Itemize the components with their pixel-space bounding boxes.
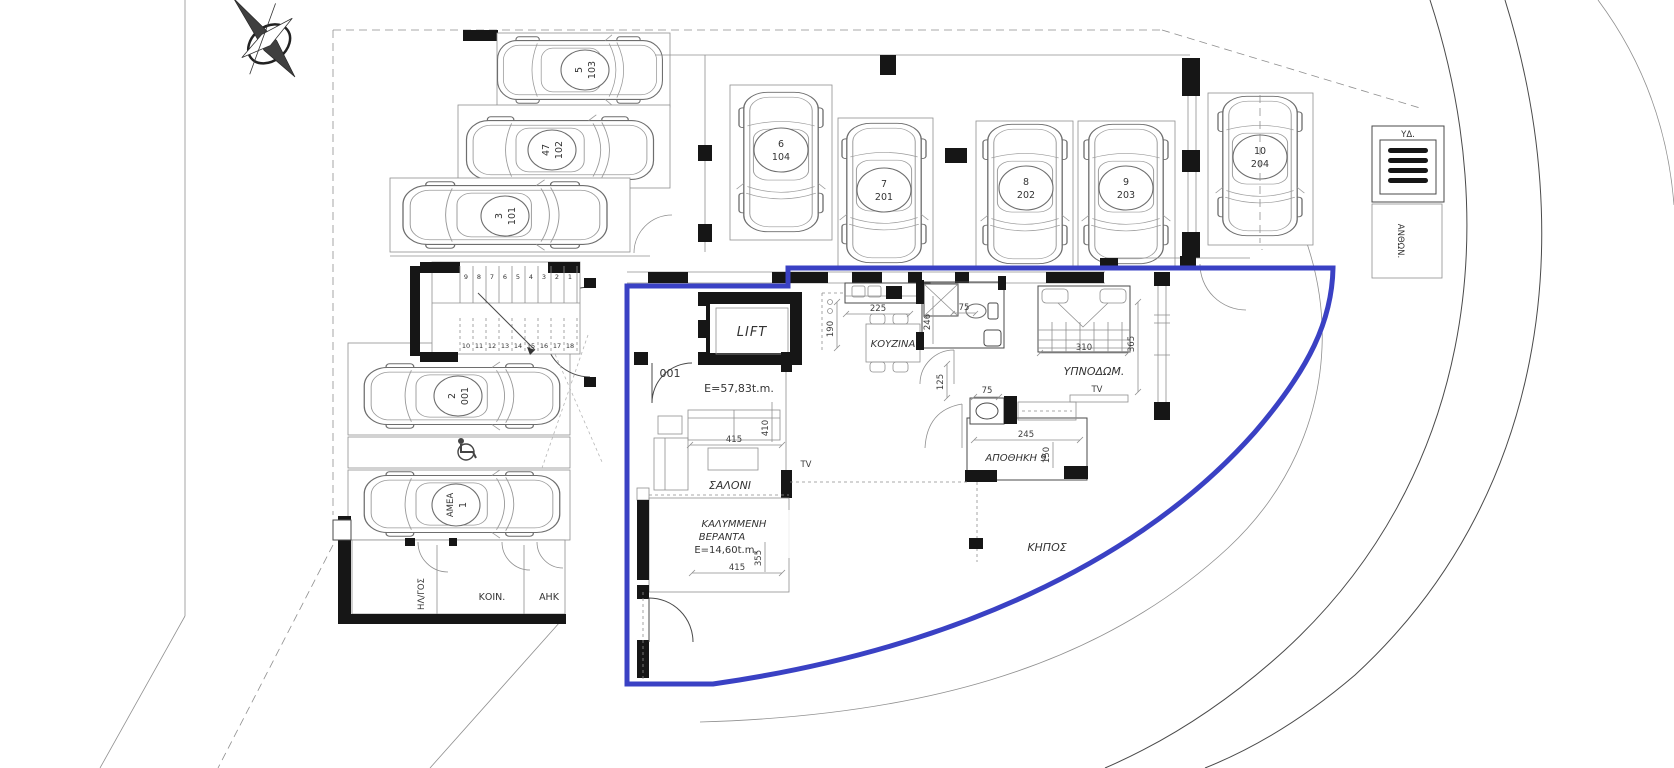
dim-living-depth: 410 <box>761 420 771 436</box>
unit-area-label: E=57,83t.m. <box>704 382 774 395</box>
parking-spot-2: 2 001 <box>348 343 570 435</box>
svg-text:7: 7 <box>490 273 494 281</box>
ahk-room-label: ΑΗΚ <box>539 592 560 603</box>
spot-number: 2 <box>447 393 458 399</box>
svg-text:15: 15 <box>527 342 535 350</box>
planter-label: ΑΝΘΩΝ. <box>1395 224 1405 258</box>
water-meter-box: ΥΔ. <box>1372 126 1444 202</box>
veranda-label-2: ΒΕΡΑΝΤΑ <box>699 532 746 543</box>
bedroom-label: ΥΠΝΟΔΩΜ. <box>1064 365 1125 378</box>
unit-number: 104 <box>772 152 790 163</box>
dim-bedroom-depth: 365 <box>1127 336 1137 352</box>
parking-spot-6: 6 104 <box>730 85 832 240</box>
spot-number: 1 <box>458 502 469 508</box>
parking-spot-47: 47 102 <box>458 105 670 188</box>
stair-numbers-lower: 10 11 12 13 14 15 16 17 18 <box>462 342 574 350</box>
unit-number: 001 <box>460 387 471 405</box>
svg-text:9: 9 <box>464 273 468 281</box>
water-meter-label: ΥΔ. <box>1400 130 1415 140</box>
garden-label: ΚΗΠΟΣ <box>1027 541 1066 554</box>
spot-number: 9 <box>1123 177 1129 188</box>
lift-label: LIFT <box>737 325 768 340</box>
parking-spot-3: 3 101 <box>390 178 630 252</box>
north-arrow-icon <box>207 0 322 98</box>
floor-plan-canvas: 5 103 47 102 3 101 <box>0 0 1674 768</box>
veranda: ΚΑΛΥΜΜΕΝΗ ΒΕΡΑΝΤΑ E=14,60t.m. 415 355 <box>637 488 798 684</box>
dim-hall-width: 125 <box>936 374 946 390</box>
electrical-room-label: ΗΛ/ΓΟΣ <box>417 578 427 610</box>
unit-number: 102 <box>554 141 565 159</box>
stair-numbers-upper: 9 8 7 6 5 4 3 2 1 <box>464 273 572 281</box>
living-label: ΣΑΛΟΝΙ <box>709 479 751 492</box>
veranda-area-label: E=14,60t.m. <box>694 545 757 556</box>
dim-kitchen-depth: 190 <box>826 321 836 337</box>
dim-storage-width: 245 <box>1018 430 1034 440</box>
hall-dimensions: 125 <box>936 361 950 401</box>
kitchen: 225 190 ΚΟΥΖΙΝΑ <box>822 283 930 372</box>
dim-kitchen-width: 225 <box>870 304 886 314</box>
svg-text:12: 12 <box>488 342 496 350</box>
svg-text:8: 8 <box>477 273 481 281</box>
storage-room: 245 150 ΑΠΟΘΗΚΗ 9 75 <box>925 386 1088 482</box>
wheelchair-icon <box>458 438 476 460</box>
tv-label-bedroom: TV <box>1090 385 1102 395</box>
parking-spot-1: ΑΜΕΑ 1 <box>348 470 570 540</box>
unit-number: 201 <box>875 192 893 203</box>
unit-number: 203 <box>1117 190 1135 201</box>
svg-text:11: 11 <box>475 342 483 350</box>
dim-veranda-depth: 355 <box>754 550 764 566</box>
spot-number: 5 <box>574 67 585 73</box>
garden: ΚΗΠΟΣ <box>790 482 1067 562</box>
svg-text:6: 6 <box>503 273 507 281</box>
spot-number: 6 <box>778 139 784 150</box>
parking-spot-7: 7 201 <box>838 118 933 266</box>
tv-label-living: TV <box>799 460 811 470</box>
parking-spot-8: 8 202 <box>976 121 1073 266</box>
communal-room-label: ΚΟΙΝ. <box>479 592 506 603</box>
staircase: 9 8 7 6 5 4 3 2 1 10 11 12 13 14 15 16 1… <box>410 262 580 362</box>
svg-text:2: 2 <box>555 273 559 281</box>
dim-veranda-width: 415 <box>729 563 745 573</box>
accessible-strip <box>348 437 570 468</box>
dim-bath-depth: 246 <box>923 314 933 330</box>
dim-storage-door: 75 <box>982 386 993 396</box>
svg-text:10: 10 <box>462 342 470 350</box>
dim-bedroom-width: 310 <box>1076 343 1092 353</box>
spot-number: 47 <box>541 144 552 156</box>
storage-label: ΑΠΟΘΗΚΗ 9 <box>984 453 1046 464</box>
dim-living-width: 415 <box>726 435 742 445</box>
spot-number: 8 <box>1023 177 1029 188</box>
bedroom: 310 365 ΥΠΝΟΔΩΜ. TV <box>1037 286 1141 402</box>
spot-number: 7 <box>881 179 887 190</box>
svg-text:14: 14 <box>514 342 522 350</box>
unit-number: 103 <box>587 61 598 79</box>
unit-number: 101 <box>507 207 518 225</box>
svg-text:18: 18 <box>566 342 574 350</box>
kitchen-label: ΚΟΥΖΙΝΑ <box>871 339 916 350</box>
dim-bath-width: 75 <box>959 303 970 313</box>
svg-text:17: 17 <box>553 342 561 350</box>
parking-spot-5: 5 103 <box>497 33 670 107</box>
road-curves <box>700 0 1674 768</box>
veranda-label-1: ΚΑΛΥΜΜΕΝΗ <box>702 519 767 530</box>
bathroom: 75 246 <box>916 276 1006 384</box>
parking-spot-9: 9 203 <box>1078 121 1175 266</box>
svg-text:3: 3 <box>542 273 546 281</box>
svg-text:5: 5 <box>516 273 520 281</box>
parking-spot-10: 10 204 <box>1208 93 1313 245</box>
svg-text:16: 16 <box>540 342 548 350</box>
spot-number: 3 <box>494 213 505 219</box>
entrance-code: 001 <box>660 367 681 380</box>
lift-room: LIFT <box>694 298 796 359</box>
unit-number: ΑΜΕΑ <box>446 493 456 518</box>
svg-text:4: 4 <box>529 273 533 281</box>
svg-text:1: 1 <box>568 273 572 281</box>
unit-number: 202 <box>1017 190 1035 201</box>
svg-text:13: 13 <box>501 342 509 350</box>
planter-box: ΑΝΘΩΝ. <box>1372 204 1442 278</box>
